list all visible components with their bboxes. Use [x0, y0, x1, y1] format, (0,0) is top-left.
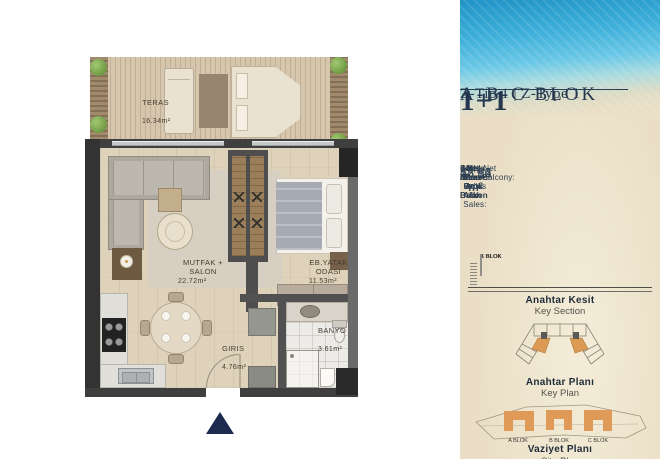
site-plan-title: Vaziyet Planı [460, 444, 660, 455]
plate-icon [161, 333, 171, 343]
chair [168, 292, 184, 302]
kitchen-sink [118, 368, 154, 384]
closet-panel [250, 156, 264, 256]
plan-variant: Z-Tip 1 | Z-Type 1 [460, 86, 580, 103]
stove [102, 318, 126, 352]
room-label-bath: BANYO 3.61m² [292, 326, 344, 346]
plant-icon [90, 59, 107, 76]
bed-blanket [276, 182, 322, 250]
chair [202, 320, 212, 336]
pillow [326, 184, 342, 214]
closet-panel [232, 156, 246, 256]
info-panel: A-B-C BLOK 1+1 Z-Tip 1 | Z-Type 1 Net Al… [460, 0, 660, 459]
pillow [326, 218, 342, 248]
plate-icon [181, 333, 191, 343]
side-table [158, 188, 182, 212]
room-name: MUTFAK + SALON [178, 258, 228, 277]
room-label-salon: MUTFAK + SALON 22.72m² [128, 258, 228, 278]
entrance-triangle-icon [206, 412, 234, 434]
room-name: BANYO [318, 326, 346, 335]
key-plan-diagram [512, 322, 608, 374]
room-name: TERAS [142, 98, 169, 107]
wall [348, 148, 358, 388]
room-area: 22.72m² [178, 278, 206, 287]
hanger-icon [252, 192, 262, 202]
plate-icon [181, 311, 191, 321]
area-value: 78.14 m² [460, 166, 491, 194]
block-label: C BLOK [480, 254, 502, 260]
wall [85, 139, 100, 397]
plate-icon [161, 311, 171, 321]
hanger-icon [234, 192, 244, 202]
level-scale [470, 262, 477, 288]
terrace-mat [199, 74, 228, 128]
hanger-icon [234, 218, 244, 228]
room-area: 4.76m² [222, 364, 246, 373]
wall [85, 388, 206, 397]
window [252, 141, 334, 146]
key-plan-subtitle: Key Plan [460, 388, 660, 399]
window [112, 141, 224, 146]
dining-table [150, 302, 202, 354]
room-name: GIRIS [222, 344, 244, 353]
room-area: 11.53m² [309, 278, 337, 287]
floorplan-brochure: TERAS 16.34m² MUTFAK + SALON 22.72m² [0, 0, 660, 459]
appliance [320, 368, 335, 387]
ground-line [468, 287, 652, 288]
room-label-entry: GIRIS 4.76m² [196, 344, 248, 364]
wall [240, 294, 348, 302]
room-label-bedroom: EB.YATAK ODASI 11.53m² [270, 258, 348, 278]
key-section-subtitle: Key Section [460, 306, 660, 317]
chair [168, 354, 184, 364]
hanger-icon [252, 218, 262, 228]
wall [278, 294, 286, 388]
chair [140, 320, 150, 336]
entry-cabinet [248, 366, 276, 388]
plant-icon [330, 57, 347, 74]
ground-line [468, 291, 652, 292]
wash-basin [300, 305, 320, 318]
room-name: EB.YATAK ODASI [309, 258, 348, 277]
entry-cabinet [248, 308, 276, 336]
plant-icon [90, 116, 107, 133]
room-area: 3.61m² [318, 346, 342, 355]
shaft [339, 148, 358, 177]
coffee-table [157, 213, 193, 250]
key-section-title: Anahtar Kesit [460, 295, 660, 306]
shower [286, 350, 319, 388]
site-plan-diagram: A BLOK B BLOK C BLOK [468, 402, 652, 444]
key-plan-title: Anahtar Planı [460, 377, 660, 388]
room-label-teras: TERAS 16.34m² [110, 98, 174, 118]
shaft [336, 368, 358, 395]
wall [246, 262, 258, 312]
room-area: 16.34m² [142, 118, 170, 127]
